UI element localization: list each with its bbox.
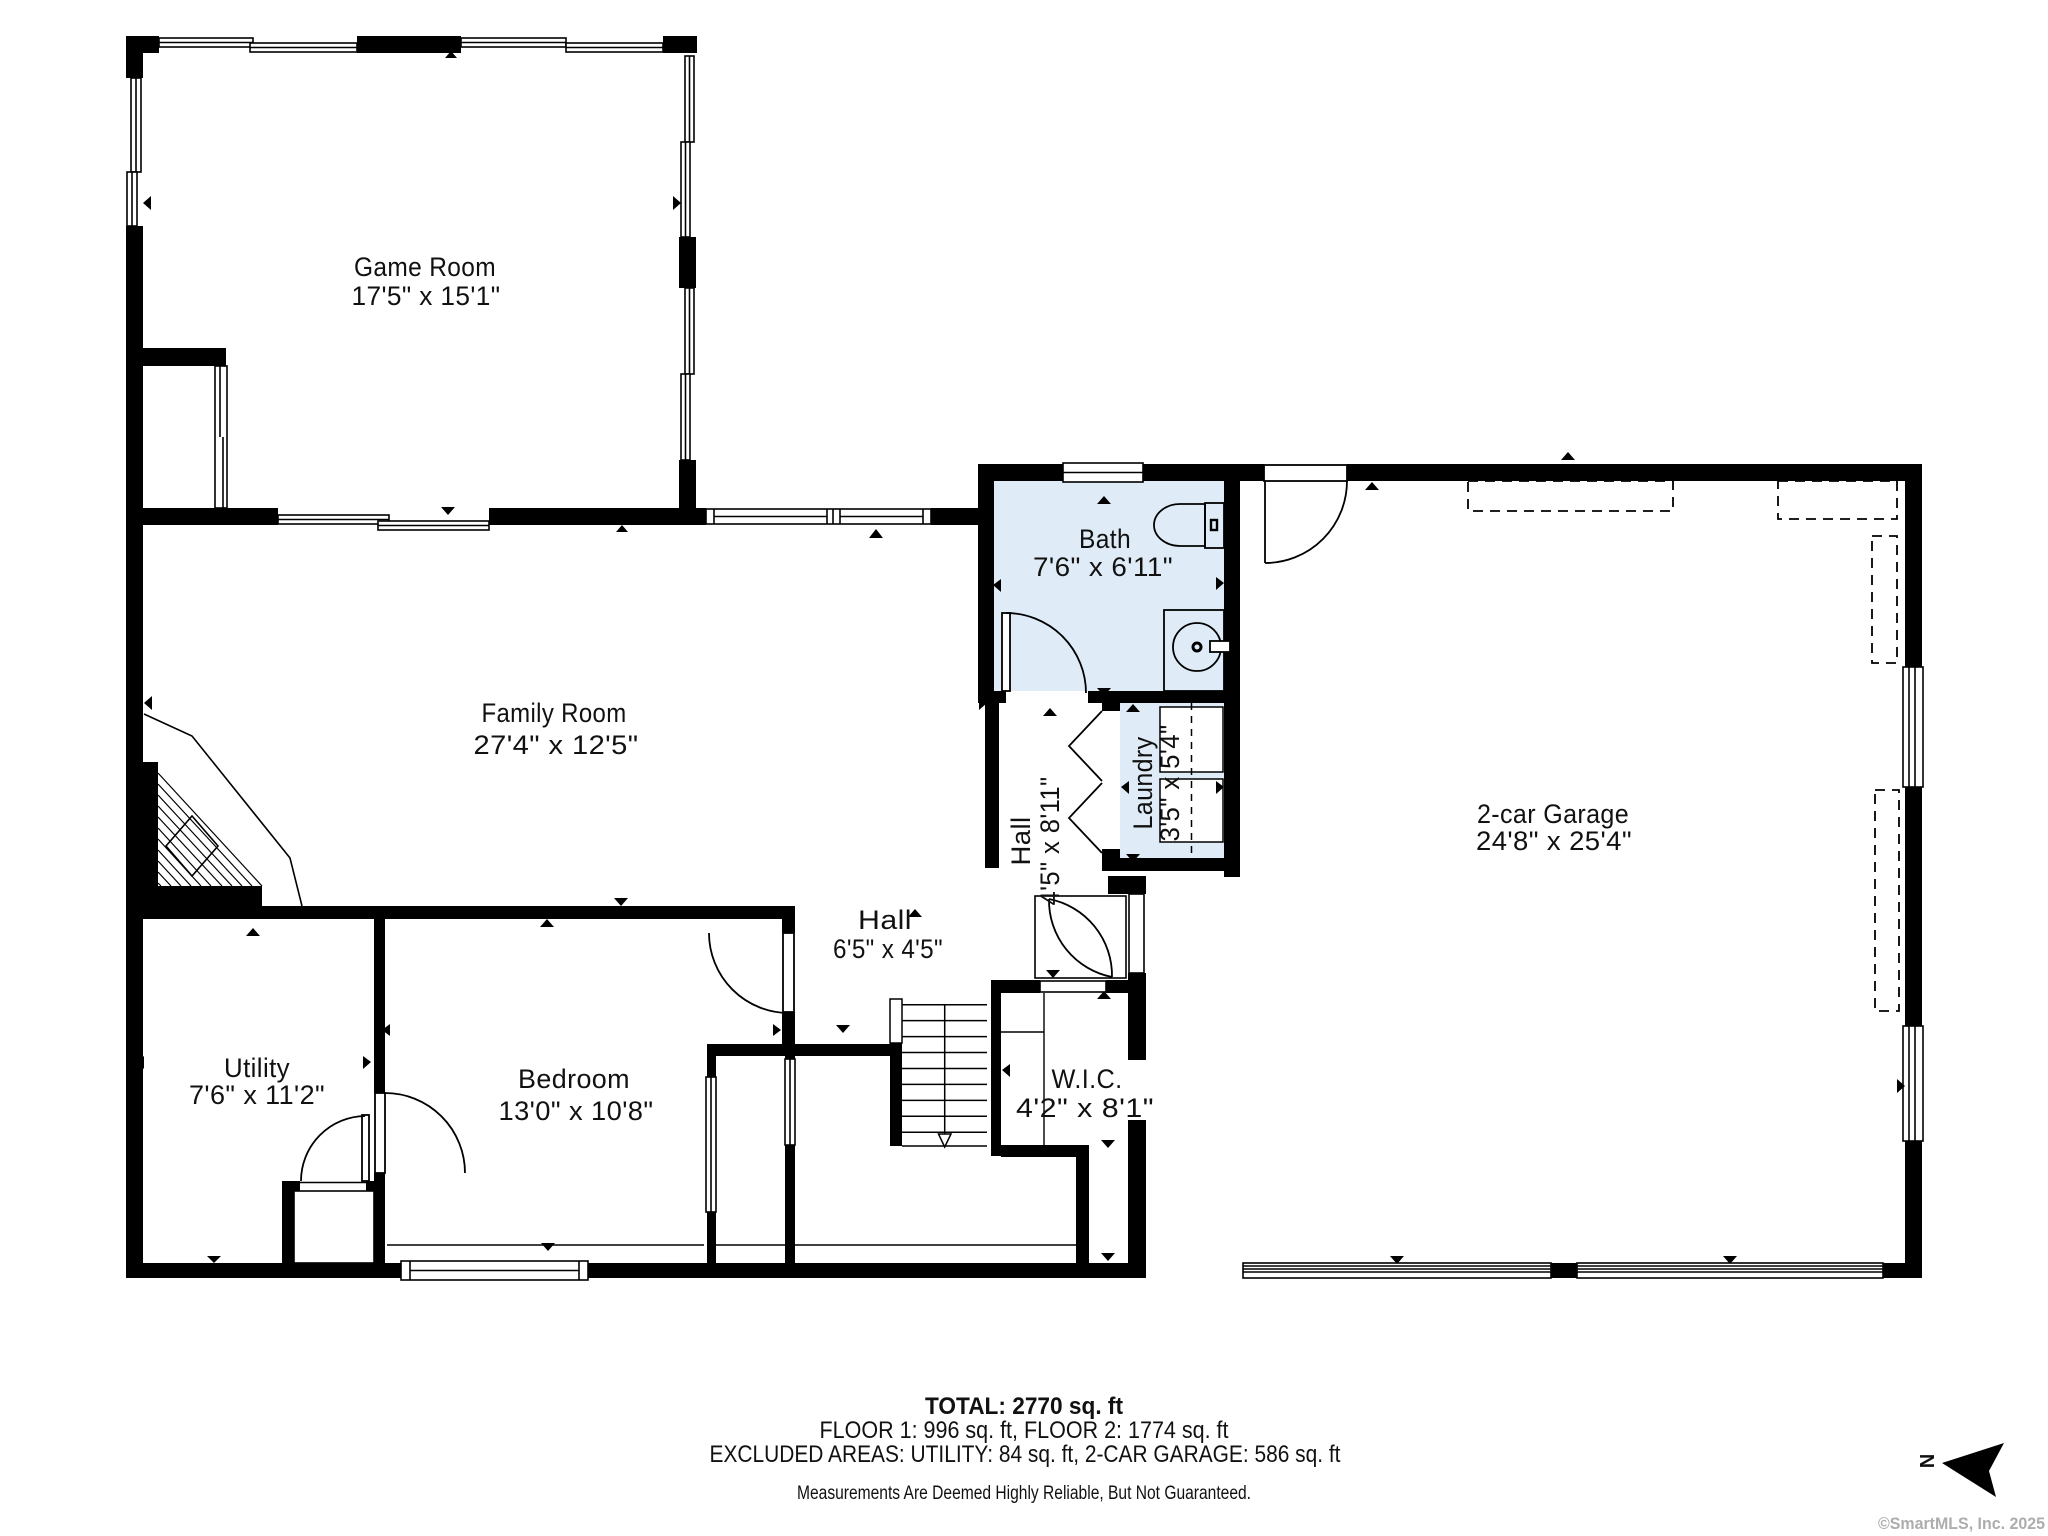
svg-text:7'6" x 6'11": 7'6" x 6'11" xyxy=(1033,552,1173,582)
svg-text:Hall: Hall xyxy=(1006,817,1036,866)
svg-text:EXCLUDED AREAS: UTILITY: 84 sq: EXCLUDED AREAS: UTILITY: 84 sq. ft, 2-CA… xyxy=(710,1441,1341,1468)
svg-text:TOTAL: 2770 sq. ft: TOTAL: 2770 sq. ft xyxy=(925,1393,1123,1420)
svg-text:W.I.C.: W.I.C. xyxy=(1052,1064,1123,1094)
svg-text:Bedroom: Bedroom xyxy=(518,1064,630,1094)
svg-text:2-car Garage: 2-car Garage xyxy=(1477,799,1629,829)
svg-text:FLOOR 1: 996 sq. ft, FLOOR 2:: FLOOR 1: 996 sq. ft, FLOOR 2: 1774 sq. f… xyxy=(820,1417,1229,1444)
svg-text:Bath: Bath xyxy=(1079,524,1131,554)
svg-text:Game Room: Game Room xyxy=(354,252,496,282)
svg-text:24'8" x 25'4": 24'8" x 25'4" xyxy=(1476,826,1632,856)
svg-text:Hall: Hall xyxy=(858,905,912,935)
svg-text:13'0" x 10'8": 13'0" x 10'8" xyxy=(499,1096,654,1126)
svg-text:17'5" x 15'1": 17'5" x 15'1" xyxy=(352,281,501,311)
svg-text:©SmartMLS, Inc. 2025: ©SmartMLS, Inc. 2025 xyxy=(1878,1514,2045,1533)
svg-text:7'6" x 11'2": 7'6" x 11'2" xyxy=(189,1080,325,1110)
svg-text:N: N xyxy=(1915,1454,1937,1468)
svg-text:6'5" x 4'5": 6'5" x 4'5" xyxy=(833,934,943,964)
svg-text:4'5" x 8'11": 4'5" x 8'11" xyxy=(1035,777,1065,906)
svg-text:Laundry: Laundry xyxy=(1128,736,1158,829)
svg-text:Utility: Utility xyxy=(224,1053,290,1083)
svg-text:Family Room: Family Room xyxy=(482,698,627,728)
svg-text:Measurements Are Deemed Highly: Measurements Are Deemed Highly Reliable,… xyxy=(797,1483,1251,1504)
svg-text:3'5" x 5'4": 3'5" x 5'4" xyxy=(1155,725,1185,842)
svg-text:27'4" x 12'5": 27'4" x 12'5" xyxy=(474,730,639,760)
svg-text:4'2" x 8'1": 4'2" x 8'1" xyxy=(1016,1093,1154,1123)
